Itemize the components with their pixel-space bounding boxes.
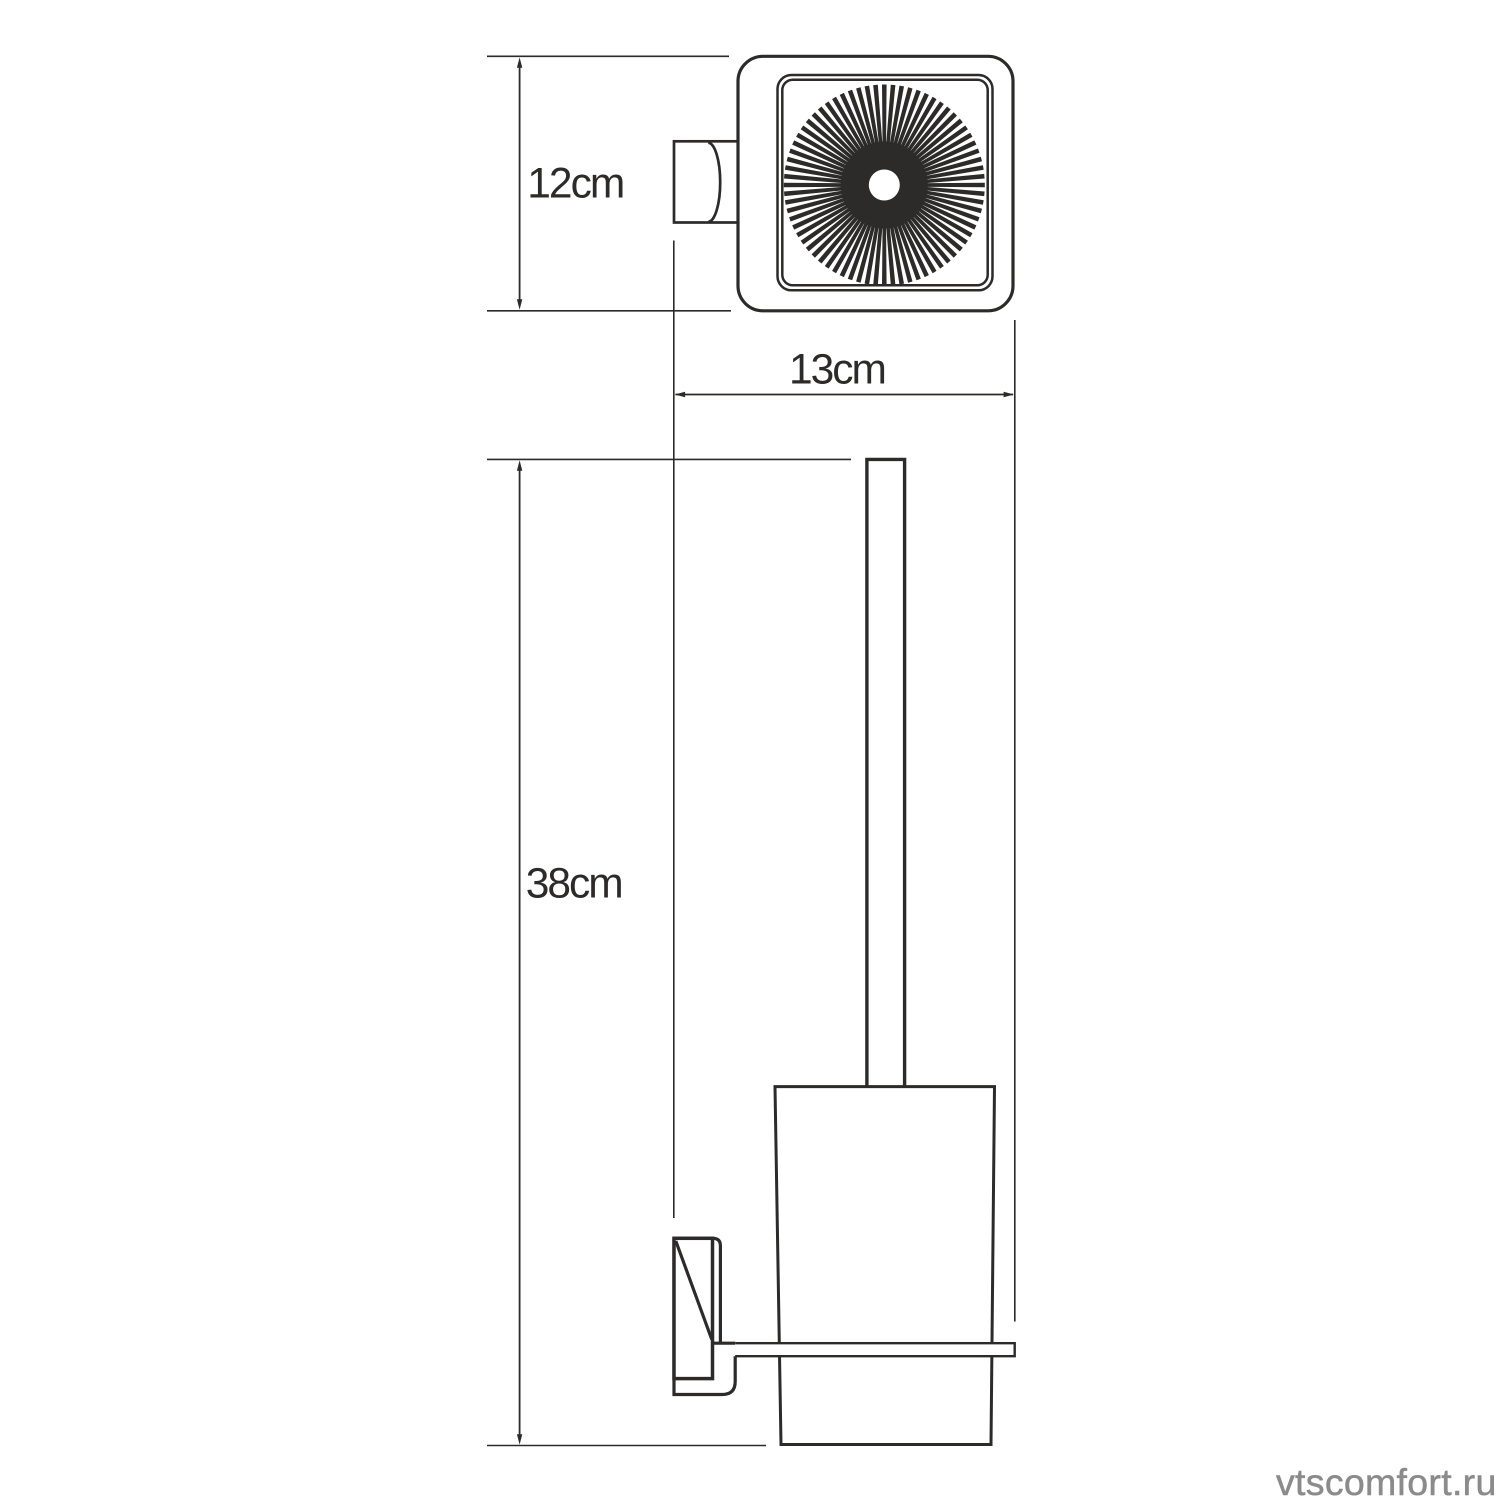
svg-text:38cm: 38cm bbox=[526, 861, 622, 908]
svg-text:12cm: 12cm bbox=[527, 161, 623, 208]
svg-text:13cm: 13cm bbox=[789, 346, 885, 393]
